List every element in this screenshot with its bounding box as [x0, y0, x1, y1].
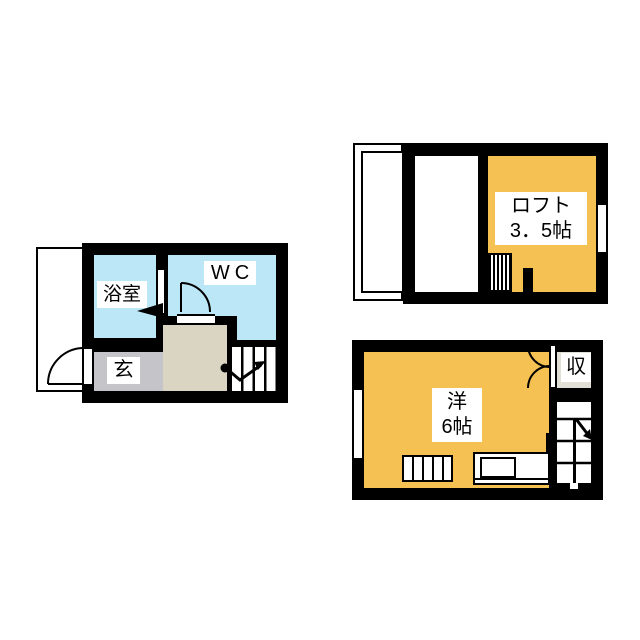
western-room-window	[354, 390, 362, 458]
wc-door-threshold	[177, 314, 215, 325]
loft-open-area	[415, 156, 478, 292]
bathroom-door	[158, 270, 164, 313]
western-room-size-text: 6帖	[441, 415, 472, 440]
closet-bottom-wall	[549, 388, 591, 402]
kitchen-sink	[480, 457, 516, 478]
bathroom-label: 浴室	[97, 281, 147, 308]
closet-door-panel	[549, 344, 557, 389]
staircase-2f	[557, 402, 591, 483]
loft-access-ladder	[402, 455, 453, 482]
floorplan-canvas: 浴室 WC 玄 ロフト 3．5帖 洋 6帖 収	[0, 0, 640, 640]
wc-label-text: WC	[211, 261, 254, 286]
loft-window	[598, 205, 606, 252]
loft-wall-stub	[523, 268, 533, 292]
hallway-floor	[163, 325, 227, 391]
loft-balcony-inner-line	[361, 151, 404, 293]
bathroom-label-text: 浴室	[103, 283, 141, 307]
loft-size-text: 3．5帖	[510, 219, 572, 244]
loft-label: ロフト 3．5帖	[495, 192, 587, 245]
western-room-name-text: 洋	[447, 390, 467, 415]
western-room-label: 洋 6帖	[432, 388, 482, 442]
wc-label: WC	[204, 261, 256, 285]
kitchen-counter-edge-line	[475, 478, 548, 480]
wc-room-extension	[237, 316, 276, 340]
closet-label: 収	[561, 353, 591, 382]
loft-ladder	[487, 253, 512, 292]
staircase-1f	[232, 347, 276, 391]
entrance-label-text: 玄	[114, 358, 134, 383]
entrance-door-threshold	[84, 349, 92, 384]
loft-name-text: ロフト	[511, 194, 571, 219]
entrance-label: 玄	[107, 357, 140, 384]
stair-bottom-gap	[570, 483, 578, 489]
closet-label-text: 収	[566, 355, 586, 380]
entrance-porch-outline	[36, 247, 84, 392]
